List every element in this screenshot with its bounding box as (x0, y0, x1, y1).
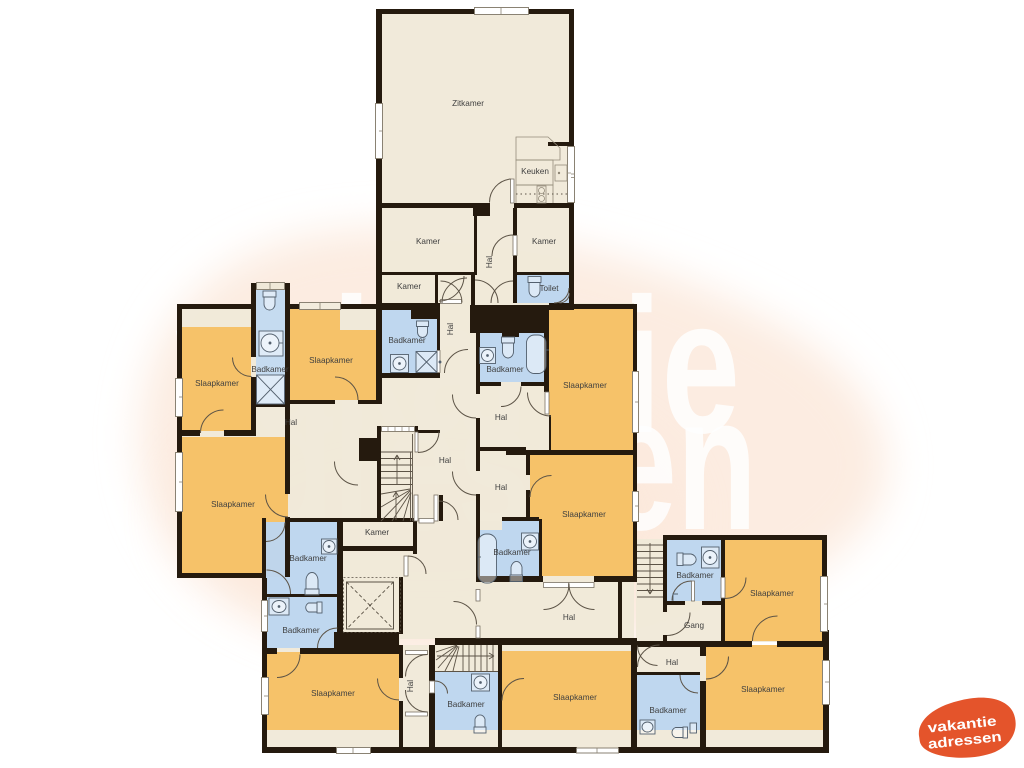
svg-text:Hal: Hal (563, 613, 575, 622)
svg-text:Hal: Hal (439, 456, 451, 465)
svg-text:Zitkamer: Zitkamer (452, 99, 484, 108)
svg-text:Kamer: Kamer (416, 237, 440, 246)
svg-text:Gang: Gang (684, 621, 704, 630)
svg-text:Badkamer: Badkamer (282, 626, 320, 635)
svg-text:Slaapkamer: Slaapkamer (741, 685, 785, 694)
svg-text:Hal: Hal (285, 418, 297, 427)
svg-text:Slaapkamer: Slaapkamer (195, 379, 239, 388)
svg-text:Badkamer: Badkamer (447, 700, 485, 709)
svg-text:Hal: Hal (666, 658, 678, 667)
svg-text:Kamer: Kamer (532, 237, 556, 246)
svg-text:Slaapkamer: Slaapkamer (309, 356, 353, 365)
svg-text:Hal: Hal (406, 680, 415, 692)
svg-text:Toilet: Toilet (539, 284, 559, 293)
svg-text:Kamer: Kamer (365, 528, 389, 537)
svg-text:Kamer: Kamer (397, 282, 421, 291)
svg-text:Hal: Hal (446, 323, 455, 335)
svg-text:Slaapkamer: Slaapkamer (211, 500, 255, 509)
svg-text:Hal: Hal (495, 413, 507, 422)
svg-text:Badkamer: Badkamer (486, 365, 524, 374)
svg-text:Hal: Hal (485, 256, 494, 268)
svg-text:Slaapkamer: Slaapkamer (311, 689, 355, 698)
svg-text:Slaapkamer: Slaapkamer (750, 589, 794, 598)
svg-text:Slaapkamer: Slaapkamer (562, 510, 606, 519)
svg-text:Keuken: Keuken (521, 167, 549, 176)
svg-text:Badkamer: Badkamer (493, 548, 531, 557)
svg-text:Badkamer: Badkamer (289, 554, 327, 563)
svg-text:Badkamer: Badkamer (649, 706, 687, 715)
svg-text:Slaapkamer: Slaapkamer (553, 693, 597, 702)
svg-text:Badkamer: Badkamer (388, 336, 426, 345)
svg-text:Hal: Hal (495, 483, 507, 492)
svg-text:Badkamer: Badkamer (676, 571, 714, 580)
svg-text:Slaapkamer: Slaapkamer (563, 381, 607, 390)
svg-text:Badkamer: Badkamer (251, 365, 289, 374)
